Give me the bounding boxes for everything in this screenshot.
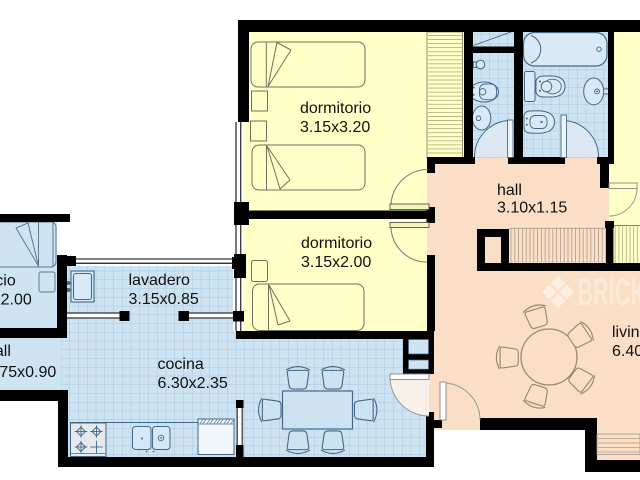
svg-text:cocina: cocina [158, 356, 204, 373]
svg-text:hall: hall [497, 182, 522, 199]
svg-text:3.10x1.15: 3.10x1.15 [497, 200, 567, 217]
svg-text:6.40x3.45: 6.40x3.45 [612, 343, 640, 360]
svg-text:1.75x0.90: 1.75x0.90 [0, 364, 56, 381]
svg-text:3.15x2.00: 3.15x2.00 [301, 254, 371, 271]
svg-text:3.15x0.85: 3.15x0.85 [129, 291, 199, 308]
svg-text:hall: hall [0, 343, 11, 360]
svg-text:dormitorio: dormitorio [300, 100, 371, 117]
svg-text:lavadero: lavadero [129, 272, 190, 289]
svg-text:3.15x3.20: 3.15x3.20 [300, 119, 370, 136]
svg-text:servicio: servicio [0, 273, 16, 290]
svg-text:6.30x2.35: 6.30x2.35 [158, 375, 228, 392]
svg-text:dormitorio: dormitorio [301, 235, 372, 252]
svg-text:BRICK: BRICK [578, 270, 640, 313]
svg-text:1.75x2.00: 1.75x2.00 [0, 292, 32, 309]
svg-text:living: living [612, 324, 640, 341]
